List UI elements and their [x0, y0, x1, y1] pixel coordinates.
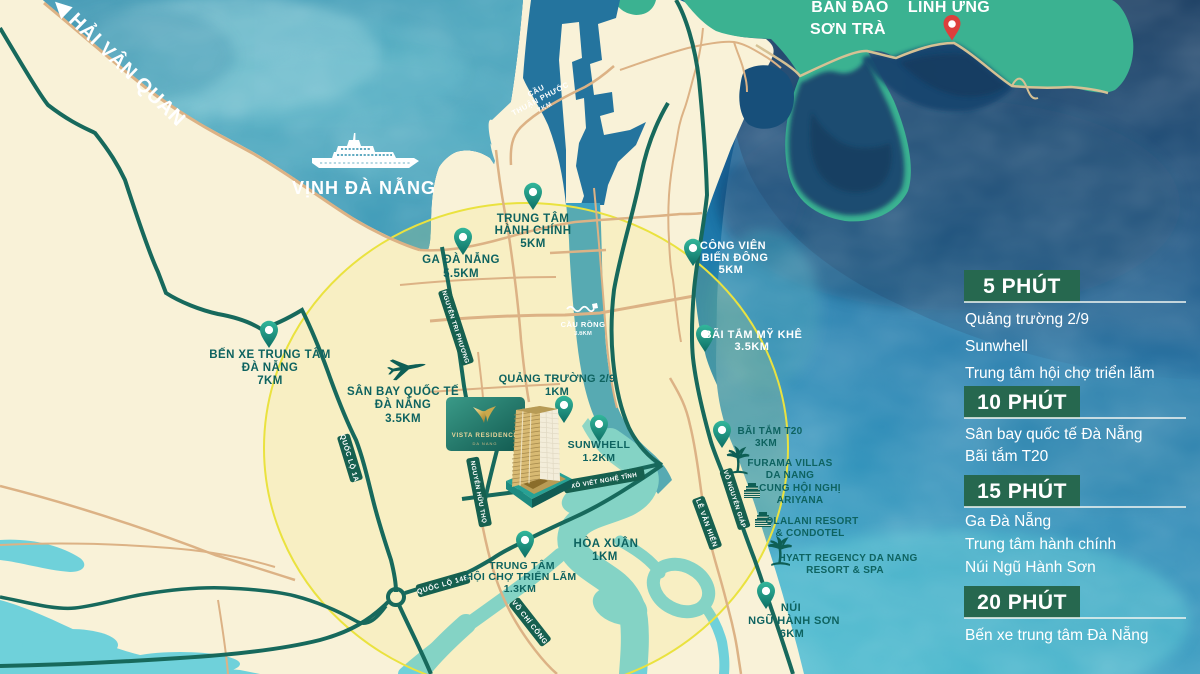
svg-text:CUNG HỘI NGHỊ: CUNG HỘI NGHỊ [759, 481, 841, 494]
svg-text:5 PHÚT: 5 PHÚT [983, 274, 1061, 298]
svg-text:3.5KM: 3.5KM [735, 341, 770, 353]
svg-text:Trung tâm hội chợ triển lãm: Trung tâm hội chợ triển lãm [965, 365, 1155, 382]
svg-text:15 PHÚT: 15 PHÚT [977, 479, 1067, 503]
svg-text:SÂN BAY QUỐC TẾ: SÂN BAY QUỐC TẾ [347, 384, 459, 398]
svg-text:BIỂN ĐÔNG: BIỂN ĐÔNG [702, 251, 769, 264]
svg-text:3KM: 3KM [755, 438, 777, 449]
svg-text:6KM: 6KM [780, 628, 804, 640]
svg-text:1KM: 1KM [592, 551, 618, 563]
svg-text:ARIYANA: ARIYANA [777, 495, 824, 506]
svg-text:3.6KM: 3.6KM [574, 331, 592, 337]
svg-text:5KM: 5KM [520, 238, 545, 250]
svg-text:Sân bay quốc tế Đà Nẵng: Sân bay quốc tế Đà Nẵng [965, 426, 1143, 443]
svg-text:7KM: 7KM [257, 375, 282, 387]
svg-text:GA ĐÀ NẪNG: GA ĐÀ NẪNG [422, 253, 500, 266]
svg-text:Bến xe trung tâm Đà Nẵng: Bến xe trung tâm Đà Nẵng [965, 627, 1149, 644]
svg-text:HYATT REGENCY DA NANG: HYATT REGENCY DA NANG [778, 553, 917, 564]
svg-text:Sunwhell: Sunwhell [965, 338, 1028, 355]
svg-text:10 PHÚT: 10 PHÚT [977, 390, 1067, 414]
svg-text:Bãi tắm T20: Bãi tắm T20 [965, 448, 1049, 465]
svg-text:1.3KM: 1.3KM [504, 583, 536, 595]
svg-text:SUNWHELL: SUNWHELL [568, 439, 631, 451]
svg-text:HỘI CHỢ TRIỂN LÃM: HỘI CHỢ TRIỂN LÃM [466, 570, 577, 583]
svg-text:5.5KM: 5.5KM [443, 268, 479, 280]
svg-text:CÔNG VIÊN: CÔNG VIÊN [700, 239, 766, 252]
svg-text:NGŨ HÀNH SƠN: NGŨ HÀNH SƠN [748, 614, 840, 627]
svg-text:ĐÀ NẪNG: ĐÀ NẪNG [242, 361, 298, 374]
svg-text:RESORT & SPA: RESORT & SPA [806, 565, 884, 576]
svg-text:DA NANG: DA NANG [766, 470, 814, 481]
svg-text:BÁN ĐẢO: BÁN ĐẢO [811, 0, 888, 16]
svg-text:Quảng trường 2/9: Quảng trường 2/9 [965, 311, 1089, 328]
svg-text:Ga Đà Nẵng: Ga Đà Nẵng [965, 513, 1051, 530]
svg-text:Trung tâm hành chính: Trung tâm hành chính [965, 536, 1116, 553]
svg-text:1KM: 1KM [545, 386, 569, 398]
svg-text:VISTA RESIDENCE: VISTA RESIDENCE [452, 432, 519, 439]
svg-text:TRUNG TÂM: TRUNG TÂM [497, 212, 570, 225]
svg-text:1.2KM: 1.2KM [583, 452, 616, 464]
svg-text:5KM: 5KM [719, 264, 744, 276]
svg-text:HÒA XUÂN: HÒA XUÂN [574, 537, 639, 550]
svg-text:ĐÀ NẪNG: ĐÀ NẪNG [375, 398, 431, 411]
svg-text:VỊNH ĐÀ NẪNG: VỊNH ĐÀ NẪNG [292, 177, 436, 198]
svg-text:NÚI: NÚI [781, 601, 801, 614]
svg-text:20 PHÚT: 20 PHÚT [977, 590, 1067, 614]
svg-text:Núi Ngũ Hành Sơn: Núi Ngũ Hành Sơn [965, 559, 1096, 576]
svg-text:HÀNH CHÍNH: HÀNH CHÍNH [495, 224, 572, 237]
svg-text:OLALANI RESORT: OLALANI RESORT [765, 516, 858, 527]
svg-text:LINH ỨNG: LINH ỨNG [908, 0, 990, 16]
svg-text:BẾN XE TRUNG TÂM: BẾN XE TRUNG TÂM [209, 348, 330, 361]
svg-text:CẦU RỒNG: CẦU RỒNG [561, 319, 606, 329]
svg-text:SƠN TRÀ: SƠN TRÀ [810, 19, 886, 38]
svg-text:FURAMA VILLAS: FURAMA VILLAS [747, 458, 832, 469]
svg-text:BÃI TẮM T20: BÃI TẮM T20 [738, 424, 803, 437]
svg-text:DA NANG: DA NANG [472, 441, 497, 446]
svg-text:QUẢNG TRƯỜNG 2/9: QUẢNG TRƯỜNG 2/9 [499, 372, 616, 385]
svg-text:3.5KM: 3.5KM [385, 413, 421, 425]
svg-text:& CONDOTEL: & CONDOTEL [775, 528, 844, 539]
svg-text:BÃI TẮM MỸ KHÊ: BÃI TẮM MỸ KHÊ [704, 328, 803, 341]
